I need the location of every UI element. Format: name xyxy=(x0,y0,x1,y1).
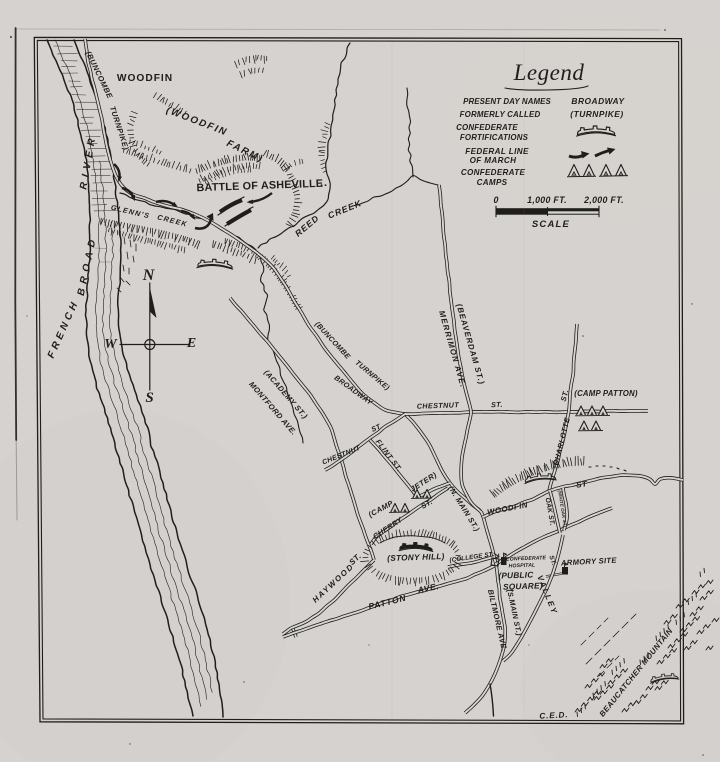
svg-text:CONFEDERATE: CONFEDERATE xyxy=(461,168,526,177)
svg-text:ST: ST xyxy=(576,479,589,490)
svg-text:PRESENT DAY NAMES: PRESENT DAY NAMES xyxy=(463,97,551,106)
svg-text:CHESTNUT: CHESTNUT xyxy=(417,400,460,410)
svg-text:C.E.D.: C.E.D. xyxy=(539,710,568,721)
svg-text:FORTIFICATIONS: FORTIFICATIONS xyxy=(460,133,529,142)
svg-text:(TURNPIKE): (TURNPIKE) xyxy=(570,109,623,119)
svg-text:BROADWAY: BROADWAY xyxy=(571,96,625,106)
svg-text:1,000 FT.: 1,000 FT. xyxy=(527,195,567,205)
svg-text:W: W xyxy=(104,337,118,352)
svg-text:ST.: ST. xyxy=(491,400,503,409)
svg-text:E: E xyxy=(186,336,197,351)
svg-text:(PUBLIC: (PUBLIC xyxy=(498,569,534,580)
svg-text:FEDERAL LINE: FEDERAL LINE xyxy=(465,147,529,156)
svg-text:CAMPS: CAMPS xyxy=(477,178,508,187)
svg-text:SCALE: SCALE xyxy=(532,219,570,230)
svg-text:..: .. xyxy=(320,177,328,189)
svg-text:2,000 FT.: 2,000 FT. xyxy=(583,195,624,205)
svg-text:WOODFIN: WOODFIN xyxy=(117,73,173,84)
svg-text:CONFEDERATE: CONFEDERATE xyxy=(456,123,518,132)
svg-text:S: S xyxy=(145,390,154,406)
svg-text:HOSPITAL: HOSPITAL xyxy=(509,563,536,570)
svg-text:FORMERLY CALLED: FORMERLY CALLED xyxy=(460,110,541,119)
svg-text:N: N xyxy=(142,267,156,284)
svg-text:0: 0 xyxy=(494,195,499,205)
svg-text:OF MARCH: OF MARCH xyxy=(470,156,517,165)
svg-text:(CAMP PATTON): (CAMP PATTON) xyxy=(574,389,638,398)
